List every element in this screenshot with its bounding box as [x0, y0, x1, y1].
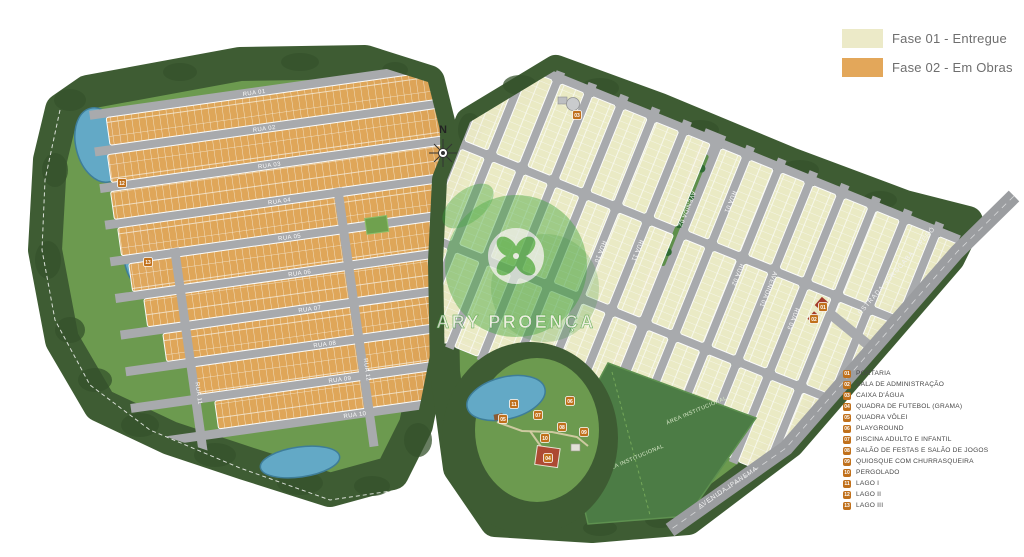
svg-text:08: 08 — [559, 425, 565, 431]
svg-text:03: 03 — [574, 113, 580, 119]
key-item: 13LAGO III — [843, 500, 988, 511]
map-badge-12: 12 — [118, 179, 127, 188]
key-item: 10PERGOLADO — [843, 467, 988, 478]
key-item: 01PORTARIA — [843, 368, 988, 379]
key-item-number: 02 — [843, 381, 851, 389]
legend-item: Fase 01 - Entregue — [842, 27, 1013, 49]
key-item: 03CAIXA D'ÁGUA — [843, 390, 988, 401]
phase-swatch — [842, 58, 883, 77]
svg-text:05: 05 — [500, 417, 506, 423]
legend-item-label: Fase 01 - Entregue — [892, 31, 1007, 46]
key-item-number: 08 — [843, 447, 851, 455]
svg-text:09: 09 — [581, 430, 587, 436]
key-item-label: PERGOLADO — [856, 469, 900, 476]
legend-item: Fase 02 - Em Obras — [842, 56, 1013, 78]
key-item: 02SALA DE ADMINISTRAÇÃO — [843, 379, 988, 390]
site-plan-page: RUA 01 RUA 02 RUA 03 RUA 04 RUA 05 RUA 0… — [0, 0, 1024, 557]
svg-text:06: 06 — [567, 399, 573, 405]
key-item-label: LAGO III — [856, 502, 883, 509]
key-item: 08SALÃO DE FESTAS E SALÃO DE JOGOS — [843, 445, 988, 456]
map-badge-05: 05 — [499, 415, 508, 424]
key-item-label: PISCINA ADULTO E INFANTIL — [856, 436, 952, 443]
key-item-label: QUADRA DE FUTEBOL (GRAMA) — [856, 403, 962, 410]
quiosque — [571, 444, 580, 451]
svg-text:12: 12 — [119, 181, 125, 187]
key-item-number: 11 — [843, 480, 851, 488]
svg-text:11: 11 — [511, 402, 517, 408]
map-badge-10: 10 — [541, 434, 550, 443]
legend: Fase 01 - EntregueFase 02 - Em Obras — [842, 27, 1013, 85]
key-item-number: 01 — [843, 370, 851, 378]
svg-text:04: 04 — [545, 456, 551, 462]
leisure-area — [442, 342, 618, 534]
map-badge-01: 01 — [819, 303, 828, 312]
map-badge-08: 08 — [558, 423, 567, 432]
key-item-number: 05 — [843, 414, 851, 422]
map-badge-04: 04 — [544, 454, 553, 463]
key-item-number: 03 — [843, 392, 851, 400]
key-item: 05QUADRA VÔLEI — [843, 412, 988, 423]
green-plaza — [365, 215, 389, 234]
key-item-number: 13 — [843, 502, 851, 510]
key-item: 06PLAYGROUND — [843, 423, 988, 434]
map-badge-06: 06 — [566, 397, 575, 406]
key-item-number: 04 — [843, 403, 851, 411]
key-item-number: 09 — [843, 458, 851, 466]
compass-north-label: N — [439, 124, 447, 136]
svg-text:01: 01 — [820, 305, 826, 311]
key-item-label: CAIXA D'ÁGUA — [856, 392, 904, 399]
map-badge-09: 09 — [580, 428, 589, 437]
key-item-number: 06 — [843, 425, 851, 433]
key-item: 11LAGO I — [843, 478, 988, 489]
phase-swatch — [842, 29, 883, 48]
key-item-label: SALA DE ADMINISTRAÇÃO — [856, 381, 944, 388]
key-item-label: SALÃO DE FESTAS E SALÃO DE JOGOS — [856, 447, 988, 454]
key-list: 01PORTARIA02SALA DE ADMINISTRAÇÃO03CAIXA… — [843, 368, 988, 511]
key-item: 09QUIOSQUE COM CHURRASQUEIRA — [843, 456, 988, 467]
map-badge-07: 07 — [534, 411, 543, 420]
map-badge-03: 03 — [573, 111, 582, 120]
map-badge-02: 02 — [810, 315, 819, 324]
key-item: 04QUADRA DE FUTEBOL (GRAMA) — [843, 401, 988, 412]
map-badge-11: 11 — [510, 400, 519, 409]
key-item-number: 10 — [843, 469, 851, 477]
svg-text:07: 07 — [535, 413, 541, 419]
watermark-text: ARY PROENÇA — [436, 312, 596, 332]
map-badge-13: 13 — [144, 258, 153, 267]
key-item-label: PORTARIA — [856, 370, 891, 377]
key-item-label: QUIOSQUE COM CHURRASQUEIRA — [856, 458, 974, 465]
key-item-number: 12 — [843, 491, 851, 499]
key-item-label: LAGO I — [856, 480, 879, 487]
key-item: 12LAGO II — [843, 489, 988, 500]
key-item-label: PLAYGROUND — [856, 425, 904, 432]
svg-text:13: 13 — [145, 260, 151, 266]
svg-text:02: 02 — [811, 317, 817, 323]
key-item-number: 07 — [843, 436, 851, 444]
key-item-label: LAGO II — [856, 491, 881, 498]
legend-item-label: Fase 02 - Em Obras — [892, 60, 1013, 75]
key-item: 07PISCINA ADULTO E INFANTIL — [843, 434, 988, 445]
svg-text:10: 10 — [542, 436, 548, 442]
key-item-label: QUADRA VÔLEI — [856, 414, 908, 421]
